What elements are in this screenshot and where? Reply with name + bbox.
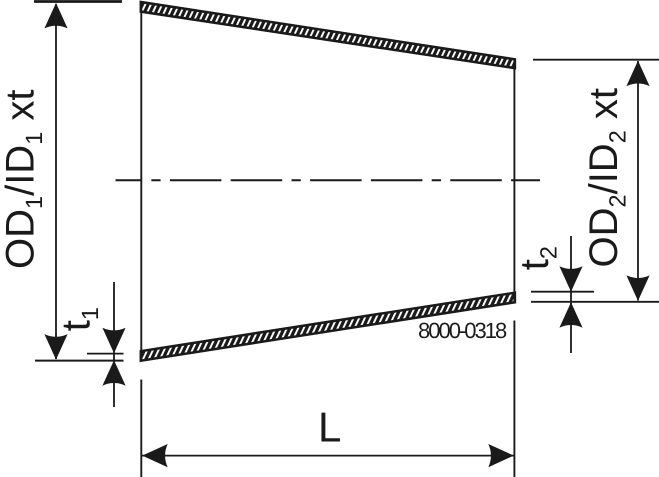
svg-text:OD1/ID1 xt: OD1/ID1 xt — [0, 89, 47, 269]
svg-text:t1: t1 — [55, 307, 104, 331]
svg-text:L: L — [318, 404, 341, 451]
svg-text:8000-0318: 8000-0318 — [418, 318, 507, 343]
svg-text:t2: t2 — [513, 246, 562, 270]
svg-text:OD2/ID2 xt: OD2/ID2 xt — [582, 88, 631, 268]
